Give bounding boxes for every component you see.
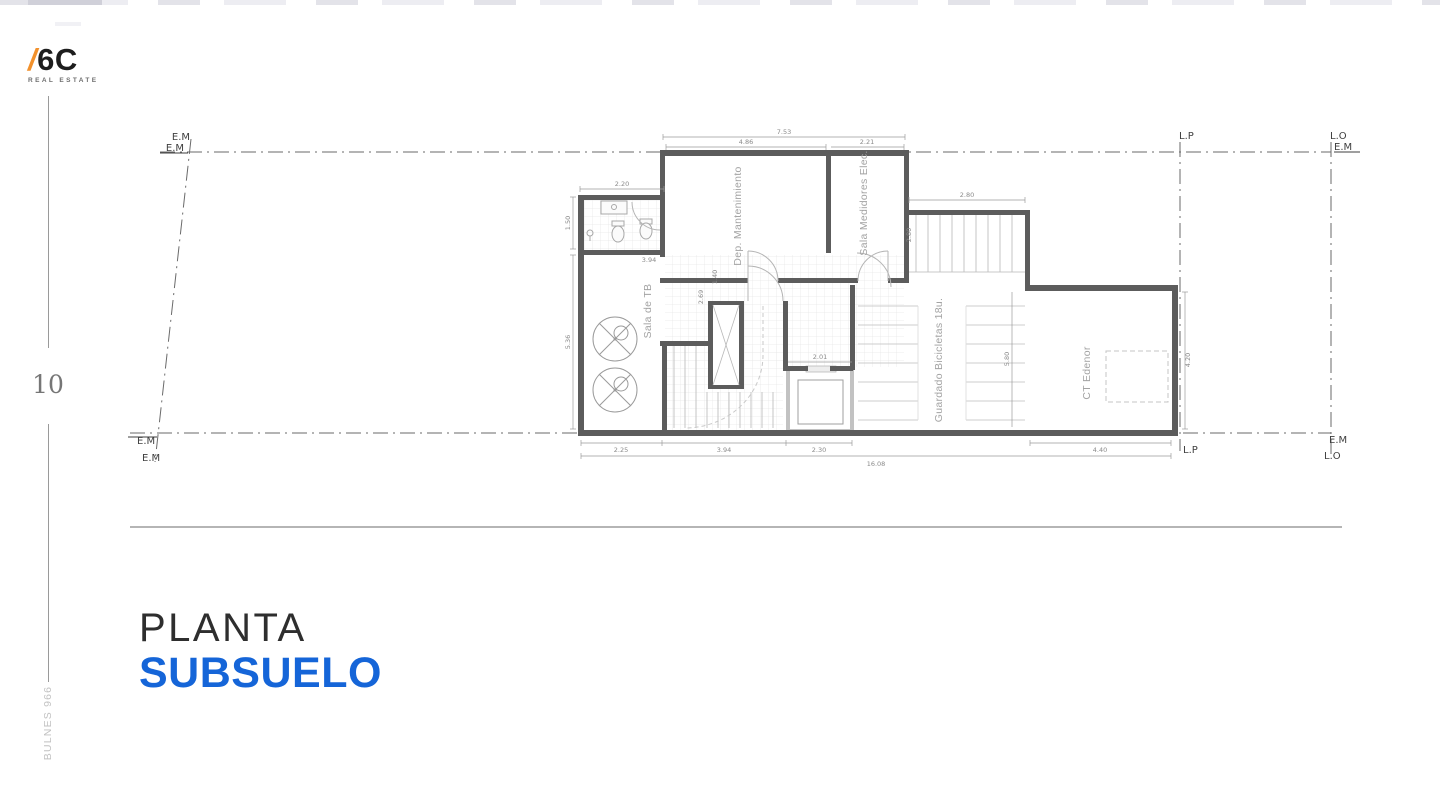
property-line-left: [155, 139, 191, 462]
label-em-top-left-2: E.M: [166, 143, 184, 154]
label-em-bottom-left-1: E.M: [137, 436, 155, 447]
dim-tb-height: 5.36: [564, 335, 572, 349]
room-label-sala-tb: Sala de TB: [642, 284, 654, 339]
room-label-bicicletas: Guardado Bicicletas 18u.: [933, 298, 945, 423]
dim-ct-height: 4.20: [1184, 353, 1192, 367]
label-em-bottom-left-2: E.M: [142, 453, 160, 464]
dim-top-total: 7.53: [777, 128, 791, 136]
room-label-ct-edenor: CT Edenor: [1081, 346, 1093, 399]
dim-bath-inner: 3.94: [642, 256, 656, 264]
dim-bottom-4: 4.40: [1093, 446, 1107, 454]
label-lo-top: L.O: [1330, 131, 1347, 142]
dim-top-left: 4.86: [739, 138, 753, 146]
label-em-bottom-right: E.M: [1329, 435, 1347, 446]
title-divider: [130, 526, 1342, 528]
label-lp-bottom: L.P: [1183, 445, 1198, 456]
dim-bottom-total: 16.08: [867, 460, 886, 468]
dim-bath-width: 2.20: [615, 180, 629, 188]
title-line1: PLANTA: [139, 606, 382, 650]
dim-ramp-height: 2.80: [905, 228, 913, 242]
dim-top-right: 2.21: [860, 138, 874, 146]
label-lo-bottom: L.O: [1324, 451, 1341, 462]
dim-ramp-width: 2.80: [960, 191, 974, 199]
dim-bottom-3: 2.30: [812, 446, 826, 454]
water-tanks: [593, 317, 637, 412]
ramp-stair-treads: [909, 212, 1025, 272]
title-line2: SUBSUELO: [139, 650, 382, 697]
dim-hall-width: 1.40: [711, 270, 719, 284]
dim-bottom-1: 2.25: [614, 446, 628, 454]
dim-bottom-2: 3.94: [717, 446, 731, 454]
dim-elevator-width: 2.01: [813, 353, 827, 361]
transformer-pad-dashed: [1106, 351, 1168, 402]
label-em-top-left-1: E.M: [172, 132, 190, 143]
elevator: [788, 366, 852, 431]
room-label-sala-medidores: Sala Medidores Elec.: [858, 150, 870, 255]
dim-shaft-depth: 2.69: [697, 290, 705, 304]
room-label-dep-mantenimiento: Dep. Mantenimiento: [732, 166, 744, 265]
dim-bike-height: 5.80: [1003, 352, 1011, 366]
label-em-top-right: E.M: [1334, 142, 1352, 153]
duct-shaft: [713, 305, 739, 385]
label-lp-top: L.P: [1179, 131, 1194, 142]
dim-bath-height: 1.50: [564, 216, 572, 230]
slide-title: PLANTA SUBSUELO: [139, 606, 382, 697]
